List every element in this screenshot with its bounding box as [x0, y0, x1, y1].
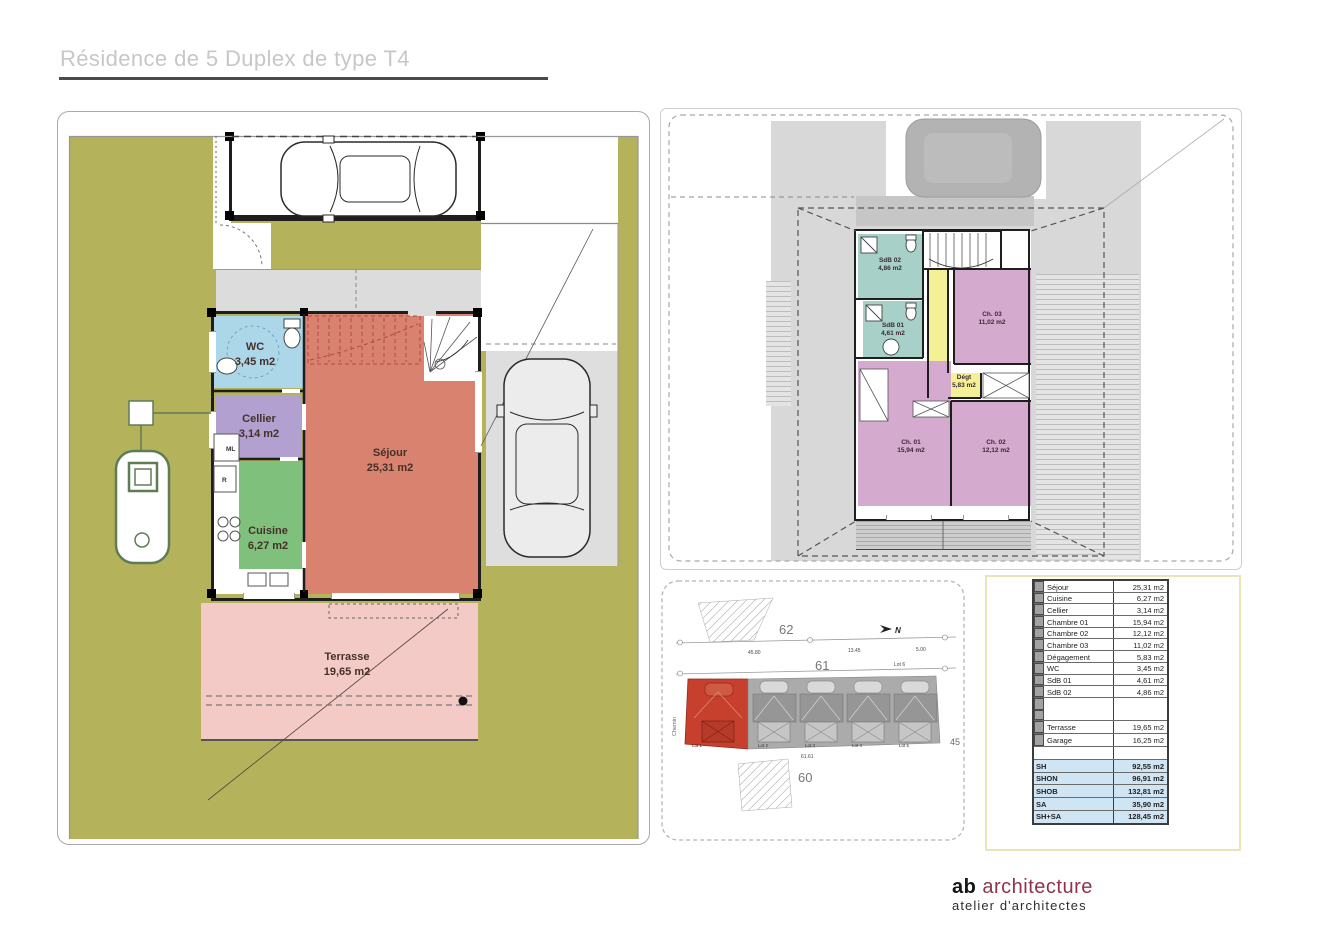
swatch — [1034, 734, 1044, 746]
table-row-spacer — [1034, 747, 1167, 760]
swatch — [1034, 616, 1044, 627]
room-label-ch01: Ch. 0115,94 m2 — [880, 439, 942, 456]
swatch — [1034, 747, 1044, 759]
table-row: SdB 014,61 m2 — [1034, 675, 1167, 687]
table-row-summary: SHOB132,81 m2 — [1034, 785, 1167, 798]
dim-top-right: 5.00 — [916, 647, 926, 653]
table-row-summary: SHON96,91 m2 — [1034, 773, 1167, 786]
room-label-cellier: Cellier3,14 m2 — [216, 412, 302, 442]
car-icon — [281, 136, 456, 222]
svg-text:N: N — [895, 626, 901, 635]
brand-name: architecture — [976, 876, 1093, 898]
area-table-panel: Séjour25,31 m2 Cuisine6,27 m2 Cellier3,1… — [985, 575, 1241, 851]
stair-treads — [308, 316, 420, 364]
winder-stair — [424, 317, 477, 372]
lot2-label: Lot 2 — [758, 743, 769, 748]
lot4-label: Lot 4 — [852, 743, 863, 748]
room-label-terrasse: Terrasse19,65 m2 — [301, 650, 393, 680]
swatch — [1034, 651, 1044, 662]
table-row: WC3,45 m2 — [1034, 663, 1167, 675]
swatch — [1034, 604, 1044, 615]
table-row-summary: SH92,55 m2 — [1034, 760, 1167, 773]
street-name: Chemin — [672, 717, 678, 736]
parcel-60: 60 — [798, 770, 812, 785]
table-row: Chambre 0311,02 m2 — [1034, 639, 1167, 651]
dim-bottom: 61.61 — [801, 754, 814, 760]
area-table: Séjour25,31 m2 Cuisine6,27 m2 Cellier3,1… — [1032, 579, 1169, 825]
room-label-degt: Dégt5,83 m2 — [942, 374, 986, 391]
table-row: SdB 024,86 m2 — [1034, 686, 1167, 698]
parcel-61: 61 — [815, 658, 829, 673]
sink-icon — [248, 573, 288, 586]
room-label-sdb01: SdB 014,61 m2 — [864, 322, 922, 339]
room-label-cuisine: Cuisine6,27 m2 — [230, 524, 306, 554]
table-row-summary: SA35,90 m2 — [1034, 798, 1167, 811]
ground-floor-plan: ML R WC3,45 m2 Cellier3,14 m2 Cuisine6,2… — [57, 111, 650, 845]
car-icon — [906, 119, 1041, 197]
room-label-sdb02: SdB 024,86 m2 — [861, 257, 919, 274]
table-row-empty — [1034, 710, 1167, 722]
table-row-summary: SH+SA128,45 m2 — [1034, 811, 1167, 824]
drawing-sheet: Résidence de 5 Duplex de type T4 — [0, 0, 1343, 950]
table-row: Séjour25,31 m2 — [1034, 581, 1167, 593]
swatch — [1034, 686, 1044, 697]
brand-bold: ab — [952, 876, 976, 898]
room-label-ch02: Ch. 0212,12 m2 — [965, 439, 1027, 456]
table-row: Cellier3,14 m2 — [1034, 604, 1167, 616]
room-label-sejour: Séjour25,31 m2 — [344, 446, 436, 476]
table-row: Chambre 0212,12 m2 — [1034, 628, 1167, 640]
table-row: Garage16,25 m2 — [1034, 734, 1167, 747]
swatch — [1034, 698, 1044, 710]
lot1-highlight — [685, 679, 748, 749]
table-row: Chambre 0115,94 m2 — [1034, 616, 1167, 628]
swatch — [1034, 675, 1044, 686]
room-label-ch03: Ch. 0311,02 m2 — [961, 311, 1023, 328]
table-row: Dégagement5,83 m2 — [1034, 651, 1167, 663]
table-row: Terrasse19,65 m2 — [1034, 721, 1167, 734]
table-row: Cuisine6,27 m2 — [1034, 593, 1167, 605]
lot6-label: Lot 6 — [894, 662, 905, 668]
dim-top-left: 45.80 — [748, 650, 761, 656]
swatch — [1034, 710, 1044, 721]
swatch — [1034, 593, 1044, 604]
car-icon — [497, 359, 597, 557]
lot5-label: Lot 5 — [899, 743, 910, 748]
water-tank-icon — [116, 401, 211, 563]
swatch — [1034, 721, 1044, 733]
upper-floor-linework — [661, 109, 1241, 569]
title-rule — [59, 77, 548, 80]
swatch — [1034, 663, 1044, 674]
lot3-label: Lot 3 — [805, 743, 816, 748]
dim-top-mid: 13.45 — [848, 648, 861, 654]
swatch — [1034, 628, 1044, 639]
swatch — [1034, 581, 1044, 592]
stairs — [923, 231, 1001, 269]
swatch — [1034, 639, 1044, 650]
brand-subtitle: atelier d'architectes — [952, 898, 1152, 913]
brand-logo: ab architecture atelier d'architectes — [952, 876, 1152, 913]
parcel-62: 62 — [779, 622, 793, 637]
upper-floor-plan: SdB 024,86 m2 SdB 014,61 m2 Ch. 0311,02 … — [660, 108, 1242, 570]
lot1-label: Lot 1 — [692, 743, 703, 748]
table-row-empty — [1034, 698, 1167, 710]
washer-label: ML — [226, 446, 235, 453]
dim-right: 45 — [950, 737, 960, 747]
hatched-area — [738, 759, 792, 811]
page-title: Résidence de 5 Duplex de type T4 — [60, 46, 410, 72]
ground-floor-linework: ML R — [58, 112, 649, 844]
room-label-wc: WC3,45 m2 — [214, 340, 296, 370]
site-plan: N 62 61 60 45.80 13.45 5.00 Lot 6 61.61 … — [658, 578, 968, 844]
fridge-label: R — [222, 477, 227, 484]
